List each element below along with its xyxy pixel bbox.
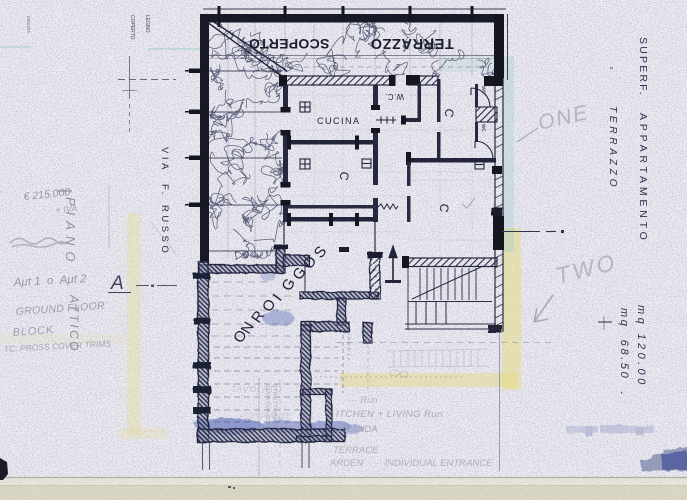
svg-text:STRUTTURA IN L: STRUTTURA IN L [271,384,277,434]
svg-text:TERRAZZO: TERRAZZO [607,106,618,190]
svg-text:ITCHEN + LIVING Run: ITCHEN + LIVING Run [336,409,443,420]
svg-text:VERANDA COPER: VERANDA COPER [264,384,270,437]
svg-text:VIA: VIA [159,147,170,173]
svg-text:COPERTO: COPERTO [129,15,135,40]
svg-text:wc: wc [480,85,486,93]
svg-text:··· Run: ··· Run [348,395,378,406]
svg-text:ATTICO: ATTICO [67,294,81,353]
svg-text:ERANDA: ERANDA [338,424,378,435]
svg-text:A P E R T A: A P E R T A [346,332,351,361]
svg-text:wc: wc [480,123,486,131]
svg-text:mq 68.50 .: mq 68.50 . [618,308,630,397]
svg-text:RUSSO: RUSSO [159,205,170,256]
svg-text:TERRACE: TERRACE [333,445,379,456]
svg-text:mq 120.00: mq 120.00 [635,305,647,388]
svg-text:„: „ [610,60,613,70]
svg-text:A: A [110,273,124,294]
svg-text:SUPERF.: SUPERF. [637,37,649,97]
svg-text:W.C.: W.C. [385,92,404,101]
svg-text:PIANO: PIANO [63,197,78,267]
svg-text:SCOPERTO: SCOPERTO [249,36,330,52]
svg-text:APPARTAMENTO: APPARTAMENTO [637,113,649,244]
svg-text:ARDEN · INDIVIDUAL ENTRAN: ARDEN · INDIVIDUAL ENTRANCE [329,458,493,469]
svg-text:TERRAZZO: TERRAZZO [370,35,454,51]
svg-text:MISURA: MISURA [26,16,31,34]
svg-text:CUCINA: CUCINA [317,116,361,126]
svg-text:F.: F. [159,184,170,197]
svg-text:LEGNO: LEGNO [144,15,150,33]
